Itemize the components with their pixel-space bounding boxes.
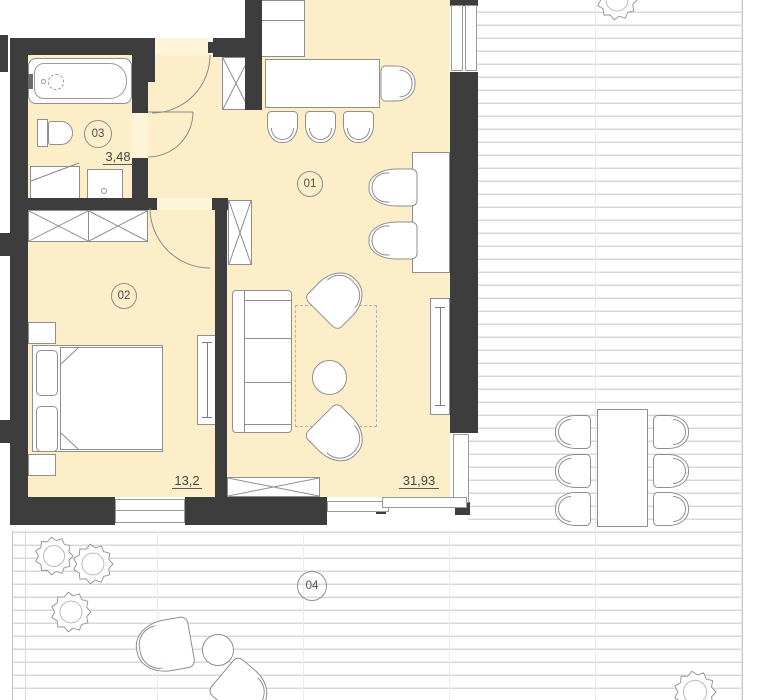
kitchen-stool-end xyxy=(381,66,416,102)
bathroom-door-threshold xyxy=(132,113,148,158)
room-label-bedroom: 02 xyxy=(111,283,137,309)
sofa-divider-1 xyxy=(245,300,291,301)
window-bedroom xyxy=(115,499,185,523)
pilaster-left-2 xyxy=(0,420,10,443)
wall-bottom-mid xyxy=(185,497,327,525)
deck-edge-line-left xyxy=(12,530,13,700)
nightstand-1 xyxy=(28,322,56,344)
terrace-chair-5 xyxy=(653,454,689,488)
room-label-living: 01 xyxy=(297,171,323,197)
plant-bottom-right xyxy=(673,670,717,700)
dining-chair-2 xyxy=(369,222,418,260)
coffee-table xyxy=(312,360,347,395)
wall-top-bathroom xyxy=(10,38,147,55)
bathtub-overflow xyxy=(41,79,46,84)
plant-bottom-3 xyxy=(50,591,92,633)
area-value-bedroom: 13,2 xyxy=(172,473,202,489)
wall-right xyxy=(450,72,478,433)
window-bedroom-mullion xyxy=(116,510,184,511)
pilaster-left-1 xyxy=(0,233,10,256)
wardrobe-panel-2 xyxy=(88,210,148,242)
wall-top-entry xyxy=(213,38,247,57)
bed-pillow-1 xyxy=(36,350,58,396)
kitchen-tall-unit-divider xyxy=(262,20,304,21)
pilaster-top-left xyxy=(0,35,8,72)
bar-stool-1 xyxy=(267,111,298,143)
plant-bottom-2 xyxy=(72,543,114,585)
room-number-terrace: 04 xyxy=(306,580,319,592)
wall-bedroom-living xyxy=(215,210,227,497)
area-value-bath: 3,48 xyxy=(103,149,133,165)
wall-party-vertical xyxy=(245,0,262,110)
dining-table xyxy=(412,152,450,273)
bed-pillow-2 xyxy=(36,406,58,452)
room-label-bath: 03 xyxy=(84,120,112,148)
toilet-bowl xyxy=(48,121,73,145)
sliding-door-pane-1 xyxy=(327,501,389,512)
washbasin xyxy=(87,169,123,199)
room-number-living: 01 xyxy=(304,178,317,190)
terrace-side-table xyxy=(202,634,234,666)
wall-bath-hall-lower xyxy=(132,158,148,202)
wall-bedroom-door-jamb xyxy=(212,198,228,210)
window-corner-vertical xyxy=(453,434,469,503)
sofa xyxy=(232,290,292,433)
sofa-backrest-line xyxy=(244,291,245,432)
kitchen-tall-unit xyxy=(261,0,305,57)
toilet-tank xyxy=(37,119,48,147)
wall-bath-bedroom xyxy=(10,198,157,210)
bedroom-door-threshold xyxy=(157,198,212,210)
deck-edge-line-left-inner xyxy=(25,530,26,700)
sofa-divider-2 xyxy=(245,338,291,339)
bathtub-drain xyxy=(48,74,64,90)
area-value-living: 31,93 xyxy=(399,473,439,489)
kitchen-counter xyxy=(265,59,380,108)
terrace-chair-4 xyxy=(653,415,689,449)
wall-left xyxy=(10,38,28,525)
plant-top-right xyxy=(595,0,639,22)
terrace-chair-6 xyxy=(653,492,689,526)
sliding-door-pane-2 xyxy=(382,497,467,508)
radiator-living xyxy=(430,298,450,415)
wall-bottom-left xyxy=(10,497,115,525)
washbasin-faucet xyxy=(101,188,107,194)
room-number-bath: 03 xyxy=(92,128,105,140)
sofa-divider-3 xyxy=(245,382,291,383)
room-label-terrace: 04 xyxy=(297,571,327,601)
living-tall-cabinet xyxy=(228,200,252,265)
bed-mattress xyxy=(60,347,163,450)
terrace-chair-1 xyxy=(555,415,591,449)
bar-stool-2 xyxy=(305,111,336,143)
wardrobe-panel-1 xyxy=(28,210,89,242)
window-top-right-pane-1 xyxy=(451,5,463,71)
terrace-chair-2 xyxy=(555,454,591,488)
deck-edge-line-right xyxy=(742,0,743,700)
nightstand-2 xyxy=(28,454,56,476)
radiator-bedroom xyxy=(197,335,217,425)
sofa-divider-4 xyxy=(245,424,291,425)
terrace-chair-3 xyxy=(555,492,591,526)
room-number-bedroom: 02 xyxy=(118,290,131,302)
bar-stool-3 xyxy=(343,111,374,143)
tv-lowboard xyxy=(227,477,320,497)
floor-plan: 01 02 03 04 3,48 13,2 31,93 xyxy=(0,0,760,700)
terrace-dining-table xyxy=(597,409,648,527)
wall-bath-hall-upper xyxy=(132,55,148,113)
window-top-right-pane-2 xyxy=(465,5,477,71)
entrance-threshold xyxy=(155,38,210,55)
shower-unit xyxy=(30,166,80,200)
dining-chair-1 xyxy=(369,169,418,207)
plant-bottom-1 xyxy=(33,535,75,577)
